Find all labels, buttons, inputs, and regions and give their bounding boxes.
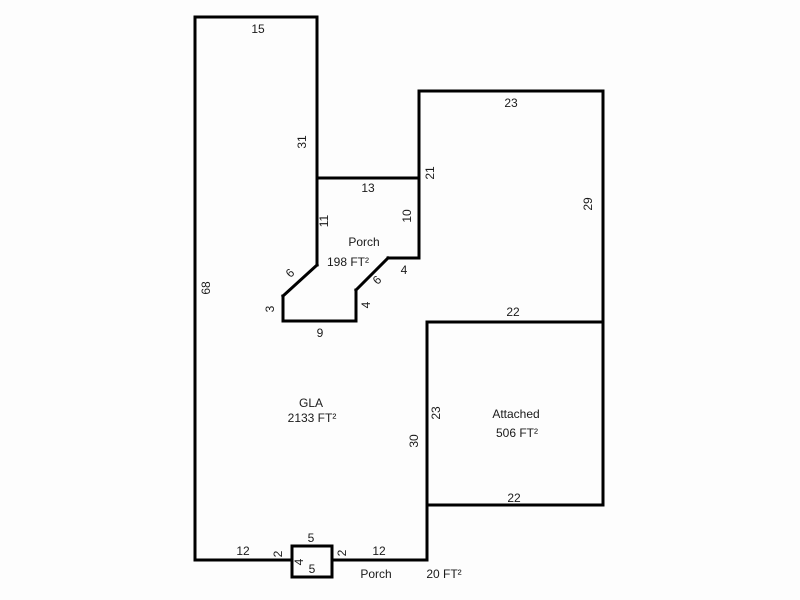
area-label: 198 FT² — [327, 256, 369, 268]
dimension-label: 2 — [336, 550, 348, 557]
area-label: Porch — [360, 568, 391, 580]
dimension-label: 9 — [317, 327, 324, 339]
dimension-label: 30 — [408, 434, 420, 447]
dimension-label: 12 — [236, 545, 249, 557]
dimension-label: 11 — [318, 215, 330, 227]
area-label: 20 FT² — [426, 568, 461, 580]
dimension-label: 10 — [401, 209, 413, 222]
dimension-label: 68 — [200, 281, 212, 294]
dimension-label: 15 — [251, 23, 264, 35]
area-label: 506 FT² — [496, 427, 538, 439]
dimension-label: 22 — [506, 306, 519, 318]
dimension-label: 3 — [264, 306, 276, 313]
floor-plan-walls-canvas — [0, 0, 800, 600]
area-label: Attached — [492, 408, 539, 420]
dimension-label: 4 — [293, 559, 305, 566]
dimension-label: 12 — [372, 545, 385, 557]
area-label: GLA — [299, 397, 323, 409]
dimension-label: 2 — [272, 551, 284, 558]
dimension-label: 4 — [401, 264, 408, 276]
dimension-label: 5 — [308, 532, 315, 544]
dimension-label: 13 — [361, 182, 374, 194]
dimension-label: 21 — [424, 166, 436, 179]
dimension-label: 23 — [430, 406, 442, 419]
dimension-label: 4 — [360, 302, 372, 309]
dimension-label: 31 — [296, 135, 308, 148]
area-label: Porch — [348, 236, 379, 248]
area-label: 2133 FT² — [288, 412, 337, 424]
dimension-label: 22 — [507, 492, 520, 504]
dimension-label: 23 — [504, 97, 517, 109]
dimension-label: 29 — [582, 197, 594, 210]
floor-plan-sketch: 1568311113211023294646392223302212254521… — [0, 0, 800, 600]
dimension-label: 5 — [309, 563, 316, 575]
